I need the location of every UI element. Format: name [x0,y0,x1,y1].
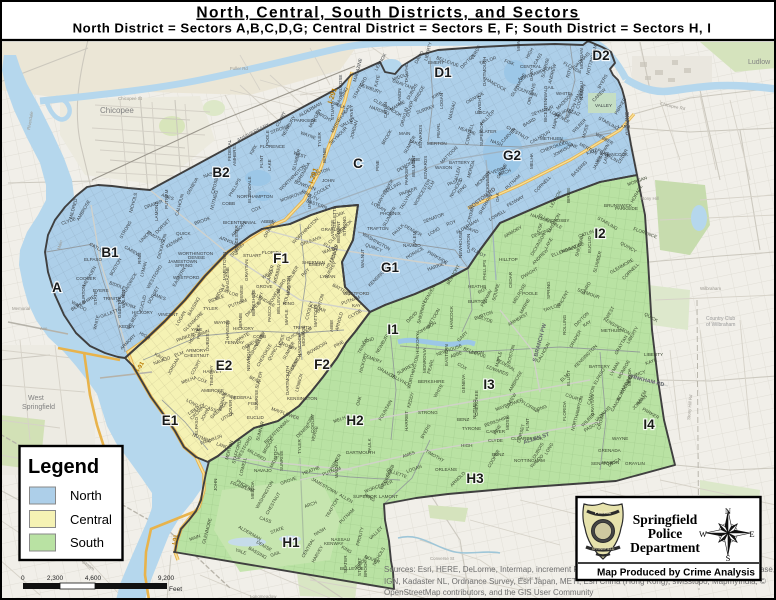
svg-text:OAK: OAK [495,191,500,202]
svg-text:ELPASO: ELPASO [84,257,102,262]
svg-text:GENEVA: GENEVA [461,373,466,393]
svg-text:Springfield: Springfield [22,404,55,411]
svg-text:SUNRISE: SUNRISE [254,390,259,410]
svg-text:G2: G2 [503,148,521,163]
svg-text:ELLENDALE: ELLENDALE [247,176,252,203]
svg-text:GRENADA: GRENADA [598,448,622,453]
svg-text:CHEROKEE: CHEROKEE [474,390,479,416]
svg-text:VALLEY: VALLEY [595,103,612,108]
svg-text:B2: B2 [212,165,229,180]
svg-text:D1: D1 [434,65,452,80]
svg-text:POLICE: POLICE [595,510,611,515]
svg-text:EDWARDS: EDWARDS [423,156,428,179]
svg-text:Wilbraham: Wilbraham [700,286,721,291]
svg-text:FLORIDA: FLORIDA [562,400,567,421]
svg-text:SUPERIOR: SUPERIOR [479,121,484,146]
svg-text:South: South [70,535,104,550]
svg-text:BIRNIE: BIRNIE [238,313,243,328]
svg-text:H2: H2 [346,413,363,428]
svg-text:JOHN: JOHN [213,478,218,491]
svg-text:GRAYTAN: GRAYTAN [244,259,249,281]
svg-text:E: E [749,529,754,539]
svg-text:ELPASO: ELPASO [194,417,199,435]
svg-text:North District = Sectors A,B,C: North District = Sectors A,B,C,D,G; Cent… [73,21,712,36]
svg-text:I4: I4 [643,417,655,432]
svg-text:TYLER: TYLER [203,306,218,311]
svg-text:KAY: KAY [352,303,361,308]
svg-text:West: West [28,395,44,402]
svg-text:Springfield: Springfield [633,512,698,527]
svg-text:Chicopee: Chicopee [100,106,134,115]
svg-text:I3: I3 [483,377,495,392]
svg-text:PEARL: PEARL [436,122,441,138]
svg-text:YALE: YALE [191,327,202,332]
svg-text:BATTERY: BATTERY [589,364,610,369]
svg-text:Feet: Feet [169,586,182,593]
svg-text:B1: B1 [101,245,119,260]
svg-text:ORLEANS: ORLEANS [435,467,457,472]
svg-text:WALNUT: WALNUT [334,459,339,478]
svg-text:SPRING: SPRING [175,263,193,268]
svg-text:Memorial: Memorial [12,306,30,311]
svg-text:GARY: GARY [529,68,534,81]
svg-text:Department: Department [630,540,700,555]
svg-text:F1: F1 [273,251,289,266]
svg-text:EASTERN: EASTERN [444,344,449,366]
svg-text:EUCLID: EUCLID [247,415,265,420]
svg-text:JOHN: JOHN [322,178,335,183]
svg-text:MELHA: MELHA [529,152,534,169]
svg-text:STUART: STUART [243,253,261,258]
svg-text:HANSON: HANSON [225,320,230,340]
svg-text:W: W [699,529,707,539]
svg-text:ENFIELD: ENFIELD [623,112,630,136]
svg-text:UNION: UNION [469,350,484,355]
svg-text:H1: H1 [282,535,300,550]
svg-text:H3: H3 [466,471,484,486]
svg-text:SPRING: SPRING [546,281,551,299]
svg-text:MERTON: MERTON [427,141,447,146]
svg-text:TYRONE: TYRONE [462,426,481,431]
svg-text:TYLER: TYLER [297,439,302,454]
svg-text:EDWARDS: EDWARDS [418,125,423,148]
svg-text:PASCO: PASCO [267,306,272,322]
svg-text:PAULK: PAULK [367,437,372,453]
svg-text:ELLIOT: ELLIOT [566,370,571,386]
svg-text:FISK: FISK [248,401,259,406]
svg-text:DUBOIS: DUBOIS [205,333,210,351]
svg-text:CHESTNUT: CHESTNUT [184,353,209,358]
svg-text:GILLETTE: GILLETTE [117,296,122,318]
svg-text:WAYNE: WAYNE [612,436,628,441]
svg-text:CANTON: CANTON [466,234,471,253]
svg-text:WHITE: WHITE [556,91,571,96]
svg-text:GRAYLIN: GRAYLIN [625,461,645,466]
svg-text:VINCENT: VINCENT [158,312,178,317]
svg-text:BROOK: BROOK [363,559,368,577]
svg-text:AMHERST: AMHERST [232,143,237,166]
svg-text:C: C [353,156,363,171]
svg-text:TYLER: TYLER [317,132,322,147]
svg-text:BELMONT: BELMONT [411,155,416,177]
svg-text:PARKSIDE: PARKSIDE [615,206,638,211]
svg-text:HICKORY: HICKORY [415,333,420,354]
svg-text:FLINT: FLINT [525,418,530,431]
svg-text:LIBERTY: LIBERTY [644,352,663,357]
svg-text:BURTON: BURTON [468,299,487,304]
svg-text:MOSS: MOSS [505,416,510,430]
svg-text:E1: E1 [162,413,179,428]
svg-text:2,300: 2,300 [47,575,64,582]
svg-text:Chicopee St: Chicopee St [118,96,143,101]
svg-text:North, Central, South District: North, Central, South Districts, and Sec… [196,5,579,22]
svg-text:HIGH: HIGH [461,443,472,448]
svg-text:Map Produced by Crime Analysis: Map Produced by Crime Analysis [597,568,755,579]
svg-text:HANCOCK: HANCOCK [605,152,629,157]
svg-text:MAPLE: MAPLE [284,309,289,325]
svg-text:Ludlow: Ludlow [748,59,771,66]
svg-text:BICENTENNIAL: BICENTENNIAL [543,88,548,122]
svg-text:WESTFORD: WESTFORD [173,275,200,280]
svg-text:4,600: 4,600 [85,575,102,582]
svg-text:NASSAU: NASSAU [579,81,584,100]
svg-text:HICKORY: HICKORY [233,326,254,331]
svg-text:CLYDE: CLYDE [488,438,503,443]
svg-text:NASSAU: NASSAU [331,537,350,542]
svg-text:NORTHAMPTON: NORTHAMPTON [237,194,273,199]
svg-text:BYERS: BYERS [93,288,109,293]
svg-text:QUICK: QUICK [176,231,191,236]
svg-text:EUCLID: EUCLID [587,235,592,253]
svg-text:I1: I1 [387,322,399,337]
svg-text:POOLE: POOLE [522,291,538,296]
svg-text:DENISE: DENISE [188,255,205,260]
svg-text:HARRIET: HARRIET [404,411,409,431]
svg-text:TALLYHO: TALLYHO [404,62,409,83]
svg-text:FLORENCE: FLORENCE [260,144,285,149]
svg-text:D2: D2 [592,48,609,63]
svg-text:EMERY: EMERY [309,262,325,267]
svg-text:MAIN: MAIN [399,131,410,136]
svg-text:N: N [725,506,731,516]
svg-text:F2: F2 [314,357,330,372]
svg-text:NAVAJO: NAVAJO [254,468,272,473]
svg-text:G1: G1 [381,260,400,275]
svg-text:NEWHOUSE: NEWHOUSE [458,231,463,258]
svg-text:SUNRISE: SUNRISE [279,451,284,471]
svg-text:COBB: COBB [222,201,235,206]
svg-text:DOVER: DOVER [228,399,233,416]
svg-text:North: North [70,488,102,503]
svg-text:BELLEVUE: BELLEVUE [340,566,364,571]
svg-text:A: A [52,280,62,295]
svg-text:PINE: PINE [375,160,380,171]
svg-text:Ave: Ave [40,326,48,331]
svg-text:HANCOCK: HANCOCK [449,305,454,329]
svg-text:GROVE: GROVE [256,284,273,289]
svg-text:Converse St: Converse St [430,556,455,561]
svg-text:E2: E2 [216,358,233,373]
svg-text:Stony Hill: Stony Hill [640,196,659,201]
svg-text:CATLIN: CATLIN [383,102,388,118]
svg-text:CENTRAL: CENTRAL [520,64,542,69]
svg-text:I2: I2 [594,226,605,241]
svg-text:CEDAR: CEDAR [508,271,513,288]
svg-text:PUTNAM: PUTNAM [164,189,169,209]
svg-text:TRAFTON: TRAFTON [367,226,389,231]
svg-text:RING: RING [283,301,295,306]
svg-text:LAMONT: LAMONT [154,202,159,221]
svg-text:MAGAZINE: MAGAZINE [225,267,230,291]
svg-text:DARTMOUTH: DARTMOUTH [482,57,487,86]
svg-text:BELMONT: BELMONT [336,221,341,243]
svg-text:FLINT: FLINT [259,155,264,168]
svg-text:PHILLIPS: PHILLIPS [482,260,487,280]
svg-text:LAMONT: LAMONT [379,494,398,499]
svg-text:STRONG: STRONG [418,410,438,415]
svg-text:BIRNIE: BIRNIE [566,188,571,203]
svg-text:of Wilbraham: of Wilbraham [706,322,735,328]
svg-text:S: S [726,553,731,563]
svg-text:Central: Central [70,512,112,527]
svg-text:FEDERAL: FEDERAL [231,395,253,400]
svg-text:9,200: 9,200 [158,575,175,582]
svg-text:Fuller Rd: Fuller Rd [230,66,248,71]
svg-text:Police: Police [648,526,682,541]
svg-text:NOTTINGHAM: NOTTINGHAM [514,458,545,463]
svg-text:WORCESTER: WORCESTER [234,224,239,255]
svg-text:BIRNIE: BIRNIE [322,148,327,163]
svg-text:HILLTOP: HILLTOP [499,257,518,262]
svg-text:KENSINGTON: KENSINGTON [287,396,317,401]
svg-text:ROLLING: ROLLING [562,314,567,335]
svg-text:SPRINGFIELD: SPRINGFIELD [592,547,615,551]
svg-text:0: 0 [21,575,25,582]
svg-text:OpenStreetMap contributors, an: OpenStreetMap contributors, and the GIS … [384,588,593,597]
svg-text:LAKE: LAKE [267,159,272,171]
svg-text:WALNUT: WALNUT [360,249,365,268]
svg-text:WASON: WASON [435,165,452,170]
svg-text:SUPERIOR: SUPERIOR [353,494,378,499]
svg-text:BERKSHIRE: BERKSHIRE [418,379,445,384]
svg-text:CANON: CANON [397,88,402,105]
svg-text:BENZ: BENZ [457,417,469,422]
svg-text:Legend: Legend [28,456,99,478]
